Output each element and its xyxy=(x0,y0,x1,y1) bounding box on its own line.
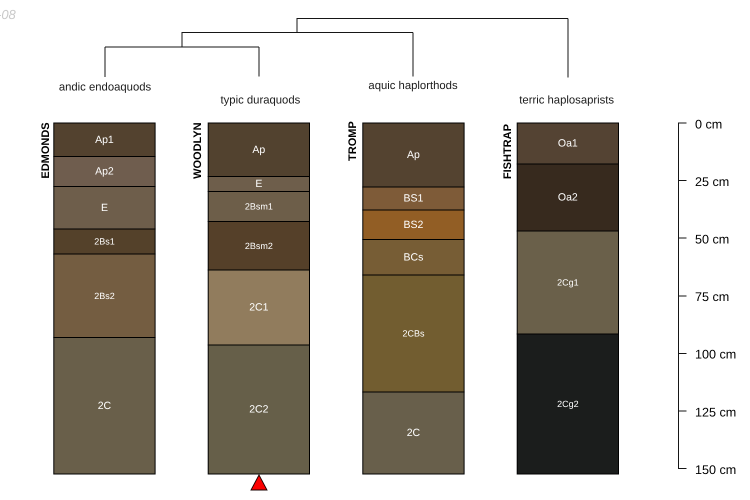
svg-text:0 cm: 0 cm xyxy=(695,118,722,132)
svg-text:E: E xyxy=(255,178,262,190)
svg-text:125 cm: 125 cm xyxy=(695,405,736,419)
svg-text:2C1: 2C1 xyxy=(249,302,268,314)
svg-text:2Bs1: 2Bs1 xyxy=(94,237,115,247)
svg-text:-08: -08 xyxy=(0,7,17,22)
svg-text:2C: 2C xyxy=(407,427,421,439)
svg-text:E: E xyxy=(101,202,108,214)
svg-text:75 cm: 75 cm xyxy=(695,290,729,304)
svg-text:2Bsm1: 2Bsm1 xyxy=(245,202,273,212)
svg-text:andic endoaquods: andic endoaquods xyxy=(59,82,152,94)
svg-text:TROMP: TROMP xyxy=(347,121,359,161)
svg-text:BS2: BS2 xyxy=(404,219,424,231)
svg-text:2Cg1: 2Cg1 xyxy=(557,278,579,288)
svg-text:BCs: BCs xyxy=(404,251,424,263)
svg-text:50 cm: 50 cm xyxy=(695,233,729,247)
svg-text:2CBs: 2CBs xyxy=(402,329,425,339)
svg-text:Oa1: Oa1 xyxy=(558,138,578,150)
svg-text:150 cm: 150 cm xyxy=(695,463,736,477)
svg-text:2Bs2: 2Bs2 xyxy=(94,291,115,301)
svg-text:Oa2: Oa2 xyxy=(558,192,578,204)
svg-text:EDMONDS: EDMONDS xyxy=(40,122,52,178)
svg-text:BS1: BS1 xyxy=(404,193,424,205)
svg-text:2Cg2: 2Cg2 xyxy=(557,399,579,409)
svg-text:typic duraquods: typic duraquods xyxy=(221,94,301,106)
svg-text:Ap2: Ap2 xyxy=(95,166,114,178)
svg-text:2C: 2C xyxy=(98,400,112,412)
svg-text:aquic haplorthods: aquic haplorthods xyxy=(368,80,458,92)
svg-text:WOODLYN: WOODLYN xyxy=(192,122,204,178)
svg-text:Ap: Ap xyxy=(252,144,265,156)
svg-text:Ap: Ap xyxy=(407,149,420,161)
svg-text:2C2: 2C2 xyxy=(249,404,268,416)
svg-text:2Bsm2: 2Bsm2 xyxy=(245,241,273,251)
svg-text:25 cm: 25 cm xyxy=(695,175,729,189)
svg-text:terric haplosaprists: terric haplosaprists xyxy=(519,94,614,106)
svg-text:FISHTRAP: FISHTRAP xyxy=(502,124,514,179)
svg-text:Ap1: Ap1 xyxy=(95,134,114,146)
svg-text:100 cm: 100 cm xyxy=(695,348,736,362)
